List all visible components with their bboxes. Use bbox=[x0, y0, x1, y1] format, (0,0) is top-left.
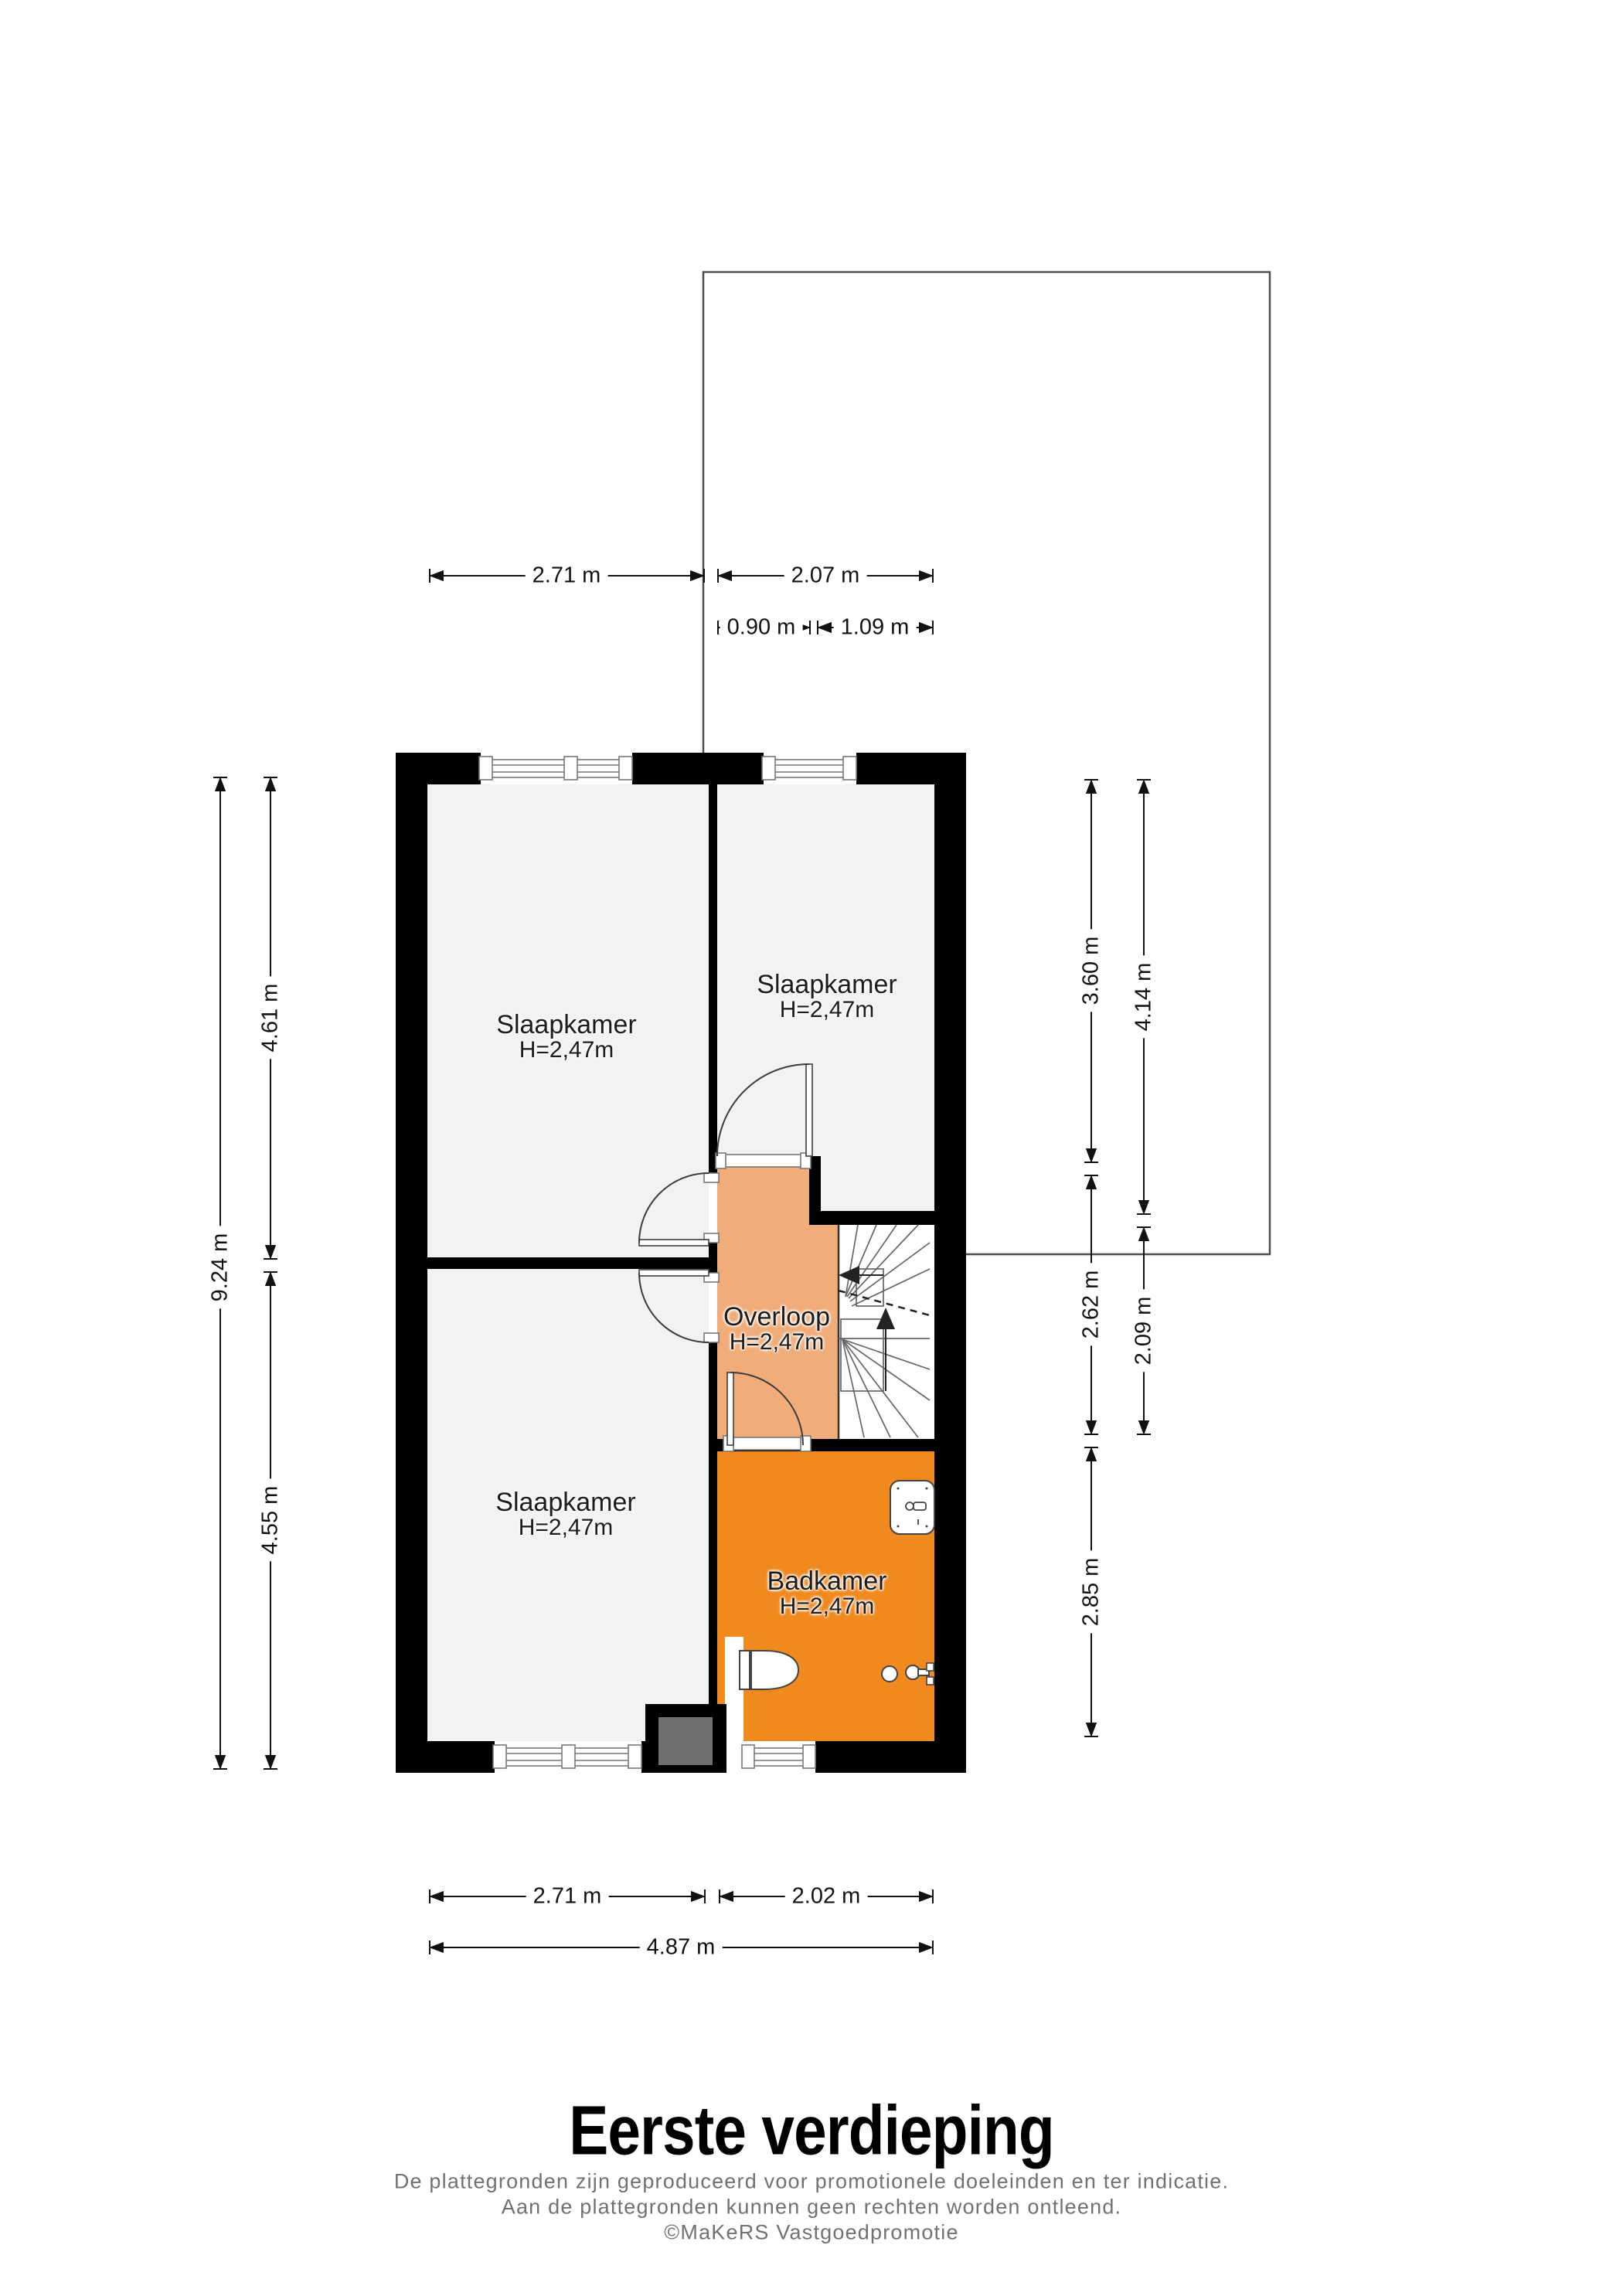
window-top-right bbox=[762, 757, 856, 780]
duct-block bbox=[658, 1717, 713, 1765]
wall-interior-vertical-upper bbox=[709, 784, 717, 1173]
dim-top-left-width: 2.71 m bbox=[526, 564, 608, 588]
wall-right bbox=[934, 753, 966, 1773]
floorplan-canvas bbox=[0, 0, 1623, 2296]
dim-bottom-total-width: 4.87 m bbox=[640, 1936, 723, 1960]
disclaimer-line-3: ©MaKeRS Vastgoedpromotie bbox=[394, 2220, 1229, 2246]
room-name: Slaapkamer bbox=[495, 1489, 635, 1515]
room-name: Overloop bbox=[723, 1304, 830, 1330]
disclaimer-line-2: Aan de plattegronden kunnen geen rechten… bbox=[394, 2195, 1229, 2220]
disclaimer-line-1: De plattegronden zijn geproduceerd voor … bbox=[394, 2169, 1229, 2195]
dim-top-sub-right: 1.09 m bbox=[834, 616, 917, 640]
dim-right-bottom: 2.85 m bbox=[1080, 1551, 1104, 1634]
wall-interior-vertical-middle bbox=[709, 1243, 717, 1273]
dim-left-upper: 4.61 m bbox=[259, 977, 283, 1060]
label-overloop: Overloop H=2,47m bbox=[723, 1304, 830, 1355]
dim-top-right-width: 2.07 m bbox=[784, 564, 867, 588]
wall-bottom-right bbox=[815, 1741, 966, 1773]
wall-left bbox=[396, 753, 427, 1773]
toilet bbox=[740, 1651, 798, 1689]
label-slaapkamer-bottom-left: Slaapkamer H=2,47m bbox=[495, 1489, 635, 1540]
label-badkamer: Badkamer H=2,47m bbox=[767, 1568, 887, 1619]
label-slaapkamer-top-left: Slaapkamer H=2,47m bbox=[496, 1012, 636, 1063]
room-name: Slaapkamer bbox=[757, 971, 897, 998]
dim-top-sub-left: 0.90 m bbox=[720, 616, 803, 640]
room-height: H=2,47m bbox=[757, 998, 897, 1022]
dim-left-lower: 4.55 m bbox=[259, 1479, 283, 1562]
wall-interior-vertical-lower bbox=[709, 1342, 717, 1741]
room-height: H=2,47m bbox=[496, 1038, 636, 1063]
page-title: Eerste verdieping bbox=[569, 2092, 1054, 2172]
dim-bottom-left-width: 2.71 m bbox=[526, 1885, 609, 1909]
room-height: H=2,47m bbox=[767, 1594, 887, 1619]
window-badkamer bbox=[742, 1745, 815, 1768]
dim-right-top: 3.60 m bbox=[1080, 930, 1104, 1012]
label-slaapkamer-top-right: Slaapkamer H=2,47m bbox=[757, 971, 897, 1022]
room-height: H=2,47m bbox=[495, 1515, 635, 1540]
wall-under-top-right-room bbox=[809, 1211, 934, 1225]
dim-right-outer-top: 4.14 m bbox=[1132, 956, 1156, 1039]
wall-bottom-left bbox=[396, 1741, 495, 1773]
window-top-left bbox=[479, 757, 632, 780]
room-name: Slaapkamer bbox=[496, 1012, 636, 1038]
dim-bottom-right-width: 2.02 m bbox=[785, 1885, 868, 1909]
window-bottom-left bbox=[493, 1745, 641, 1768]
dim-right-outer-middle: 2.09 m bbox=[1132, 1290, 1156, 1372]
wall-top-middle bbox=[632, 753, 764, 784]
shower bbox=[890, 1481, 934, 1534]
dim-right-middle: 2.62 m bbox=[1080, 1264, 1104, 1346]
room-height: H=2,47m bbox=[723, 1330, 830, 1355]
room-name: Badkamer bbox=[767, 1568, 887, 1594]
floorplan-page: Slaapkamer H=2,47m Slaapkamer H=2,47m Sl… bbox=[0, 0, 1623, 2296]
wall-bedroom-divider bbox=[427, 1257, 709, 1269]
disclaimer: De plattegronden zijn geproduceerd voor … bbox=[394, 2169, 1229, 2246]
dim-left-total: 9.24 m bbox=[209, 1226, 233, 1309]
